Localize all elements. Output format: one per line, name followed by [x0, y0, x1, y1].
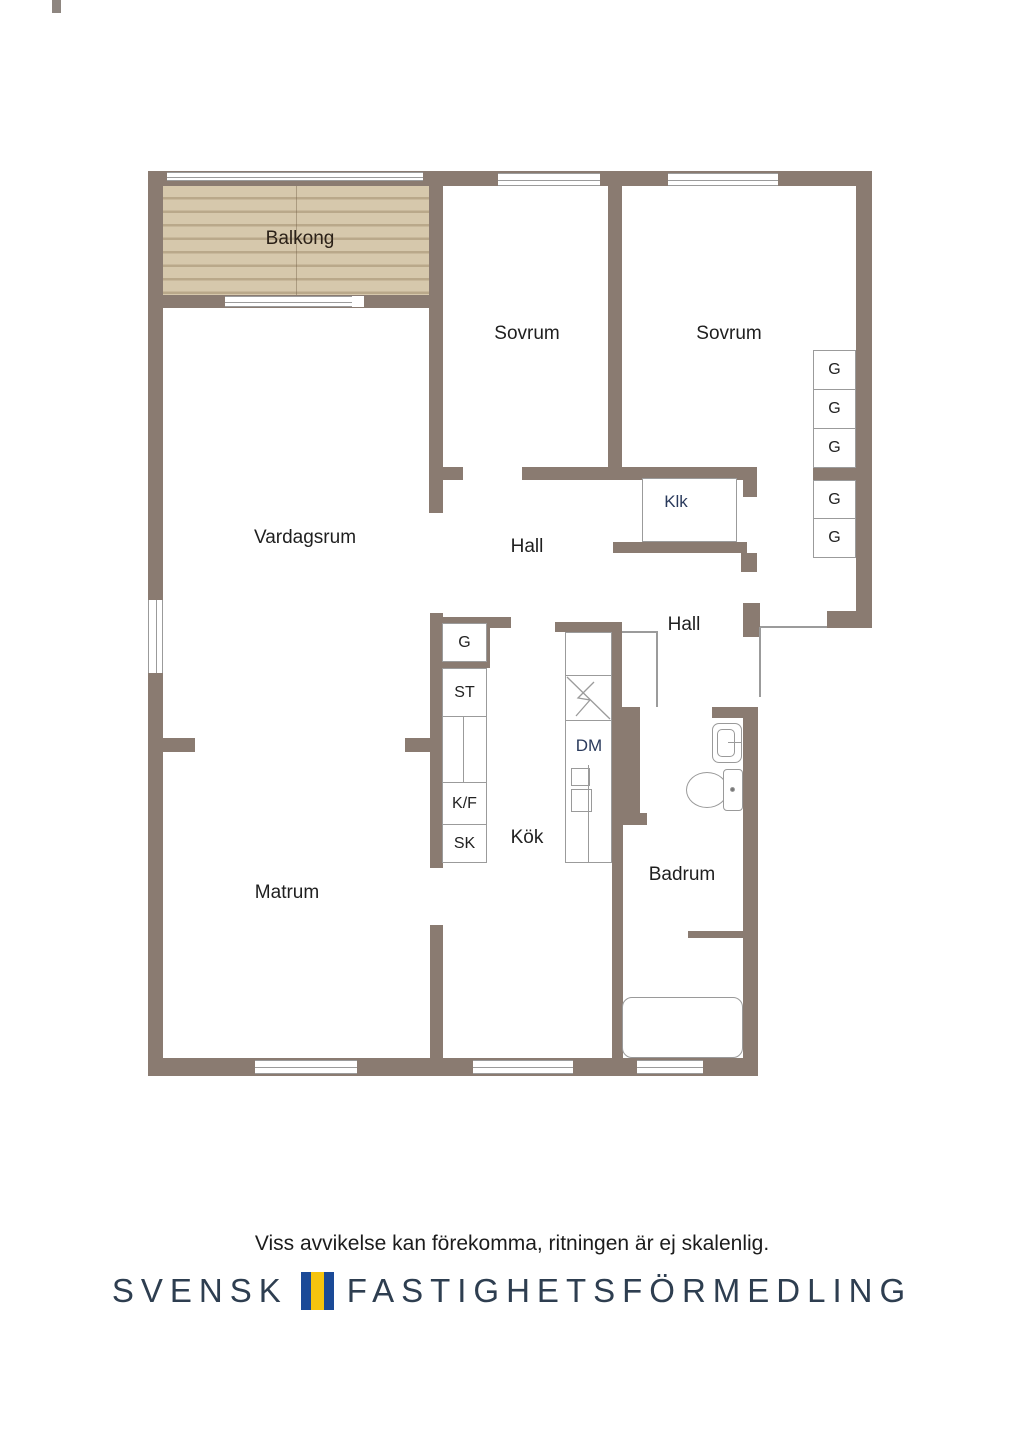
window-vardagsrum-left: [148, 600, 163, 673]
wall-gcab-stub: [490, 617, 511, 628]
brand-word-svensk: SVENSK: [112, 1272, 288, 1310]
room-label-hall2: Hall: [668, 614, 701, 636]
entry-door-leaf: [759, 627, 761, 697]
disclaimer-text: Viss avvikelse kan förekomma, ritningen …: [0, 1232, 1024, 1256]
room-label-sovrum1: Sovrum: [494, 323, 559, 345]
room-label-kok: Kök: [511, 827, 544, 849]
wardrobe-g5-label: G: [828, 529, 840, 547]
entry-door-line: [760, 626, 827, 628]
wall-right-step: [827, 611, 872, 628]
wall-badrum-east: [743, 707, 758, 1058]
wall-kitchen-west-lower: [430, 925, 443, 1060]
wall-balcony-right: [429, 171, 443, 513]
kitchen-counter-divider: [463, 717, 464, 782]
window-matrum: [255, 1060, 357, 1074]
room-label-badrum: Badrum: [649, 864, 716, 886]
wall-shower-partition: [688, 931, 743, 938]
wardrobe-g4: G: [813, 480, 856, 519]
wall-dm-east-wide: [612, 707, 640, 825]
badrum-door-line: [622, 631, 657, 633]
wardrobe-g3-label: G: [828, 439, 840, 457]
sk-label: SK: [454, 835, 475, 853]
kitchen-counter: [442, 716, 487, 783]
room-label-balkong: Balkong: [266, 228, 335, 250]
scan-artifact: [52, 0, 61, 13]
floorplan-page: G G G G G G ST K/F SK Balkong Sovrum Sov…: [0, 0, 1024, 1448]
kitchen-cabinet-sk: SK: [442, 824, 487, 863]
wardrobe-g3: G: [813, 428, 856, 468]
wall-dm-east-upper: [612, 622, 622, 707]
brand-logo: SVENSK FASTIGHETSFÖRMEDLING: [0, 1272, 1024, 1310]
wardrobe-g5: G: [813, 518, 856, 558]
dm-counter-line2: [566, 720, 611, 721]
toilet-flush-dot: [730, 787, 735, 792]
window-sovrum2: [668, 173, 778, 186]
st-label: ST: [454, 684, 474, 702]
kitchen-cabinet-st: ST: [442, 668, 487, 717]
wall-wardrobe-divider: [813, 468, 856, 480]
room-label-sovrum2: Sovrum: [696, 323, 761, 345]
washbasin-inner: [717, 729, 735, 757]
window-badrum: [637, 1060, 703, 1074]
bathtub-icon: [622, 997, 743, 1058]
badrum-door-leaf: [656, 631, 658, 707]
wardrobe-g1-label: G: [828, 361, 840, 379]
dm-counter-divider: [588, 765, 589, 863]
door-gap-balcony: [352, 296, 364, 307]
room-label-matrum: Matrum: [255, 882, 319, 904]
room-label-hall1: Hall: [511, 536, 544, 558]
wall-left-upper: [148, 171, 163, 600]
wall-stub-vardagsrum: [163, 738, 195, 752]
wall-sovrum-divider: [608, 171, 622, 467]
swedish-flag-icon: [301, 1272, 334, 1310]
room-label-klk: Klk: [664, 492, 688, 512]
wardrobe-g1: G: [813, 350, 856, 390]
label-dm: DM: [576, 736, 602, 756]
wall-stub-matrum: [405, 738, 431, 752]
window-balcony-top: [167, 172, 423, 181]
window-kok: [473, 1060, 573, 1074]
wall-stub-sovrum1-door: [443, 467, 463, 480]
kitchen-g-label: G: [458, 634, 470, 652]
kf-label: K/F: [452, 795, 477, 813]
wall-entry-stub: [743, 603, 760, 637]
stove-icon: [566, 676, 611, 720]
kitchen-cabinet-g: G: [442, 623, 487, 662]
wardrobe-g4-label: G: [828, 491, 840, 509]
kitchen-cabinet-kf: K/F: [442, 782, 487, 825]
wall-klk-east-lower: [741, 553, 757, 572]
wall-left-lower: [148, 673, 163, 1076]
wall-klk-bottom: [613, 542, 747, 553]
wall-sovrum1-bottom: [522, 467, 612, 480]
wall-right: [856, 171, 872, 611]
room-label-vardagsrum: Vardagsrum: [254, 527, 356, 549]
wardrobe-g2: G: [813, 389, 856, 429]
wall-dm-east-stub: [612, 813, 647, 825]
brand-word-fastighetsformedling: FASTIGHETSFÖRMEDLING: [347, 1272, 912, 1310]
toilet-bowl-icon: [686, 772, 728, 808]
wall-klk-east-upper: [743, 480, 757, 497]
washbasin-faucet-line: [728, 742, 742, 743]
wardrobe-g2-label: G: [828, 400, 840, 418]
window-sovrum1: [498, 173, 600, 186]
klk-closet-box: [642, 478, 737, 542]
window-balcony-door: [225, 296, 352, 307]
